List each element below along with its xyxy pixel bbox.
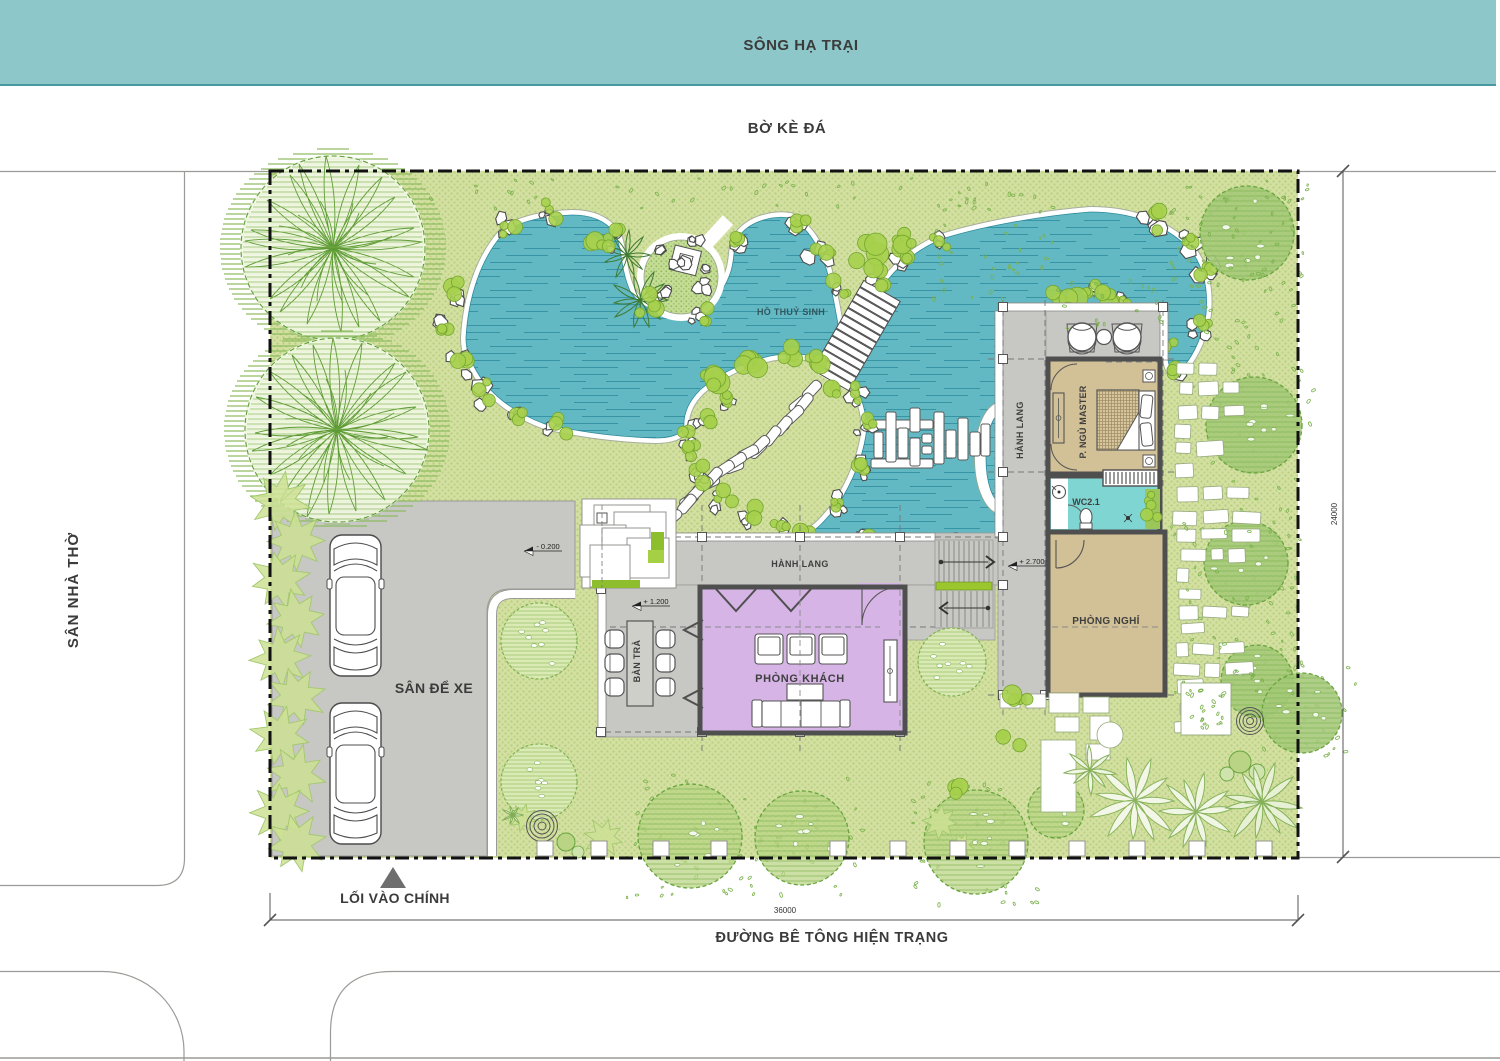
svg-text:BÀN TRÀ: BÀN TRÀ xyxy=(632,640,642,683)
svg-text:HỒ THUỶ SINH: HỒ THUỶ SINH xyxy=(757,306,825,317)
svg-text:SÂN ĐỂ XE: SÂN ĐỂ XE xyxy=(395,679,473,696)
svg-text:+ 1.200: + 1.200 xyxy=(643,597,668,606)
svg-text:+ 2.700: + 2.700 xyxy=(1019,557,1044,566)
svg-text:- 0.200: - 0.200 xyxy=(536,542,559,551)
svg-text:BỜ KÈ ĐÁ: BỜ KÈ ĐÁ xyxy=(748,119,826,137)
svg-text:24000: 24000 xyxy=(1330,502,1339,525)
svg-text:ĐƯỜNG BÊ TÔNG HIỆN TRẠNG: ĐƯỜNG BÊ TÔNG HIỆN TRẠNG xyxy=(716,928,949,946)
svg-text:36000: 36000 xyxy=(774,906,797,915)
svg-text:SÂN NHÀ THỜ: SÂN NHÀ THỜ xyxy=(64,532,82,648)
svg-text:HÀNH LANG: HÀNH LANG xyxy=(771,559,829,569)
svg-text:SÔNG HẠ TRẠI: SÔNG HẠ TRẠI xyxy=(743,36,858,54)
svg-text:PHÒNG NGHỈ: PHÒNG NGHỈ xyxy=(1072,614,1139,627)
svg-text:LỐI VÀO CHÍNH: LỐI VÀO CHÍNH xyxy=(340,889,450,906)
svg-text:HÀNH LANG: HÀNH LANG xyxy=(1015,401,1025,459)
svg-text:WC2.1: WC2.1 xyxy=(1072,497,1100,507)
svg-text:P. NGỦ MASTER: P. NGỦ MASTER xyxy=(1077,385,1088,458)
